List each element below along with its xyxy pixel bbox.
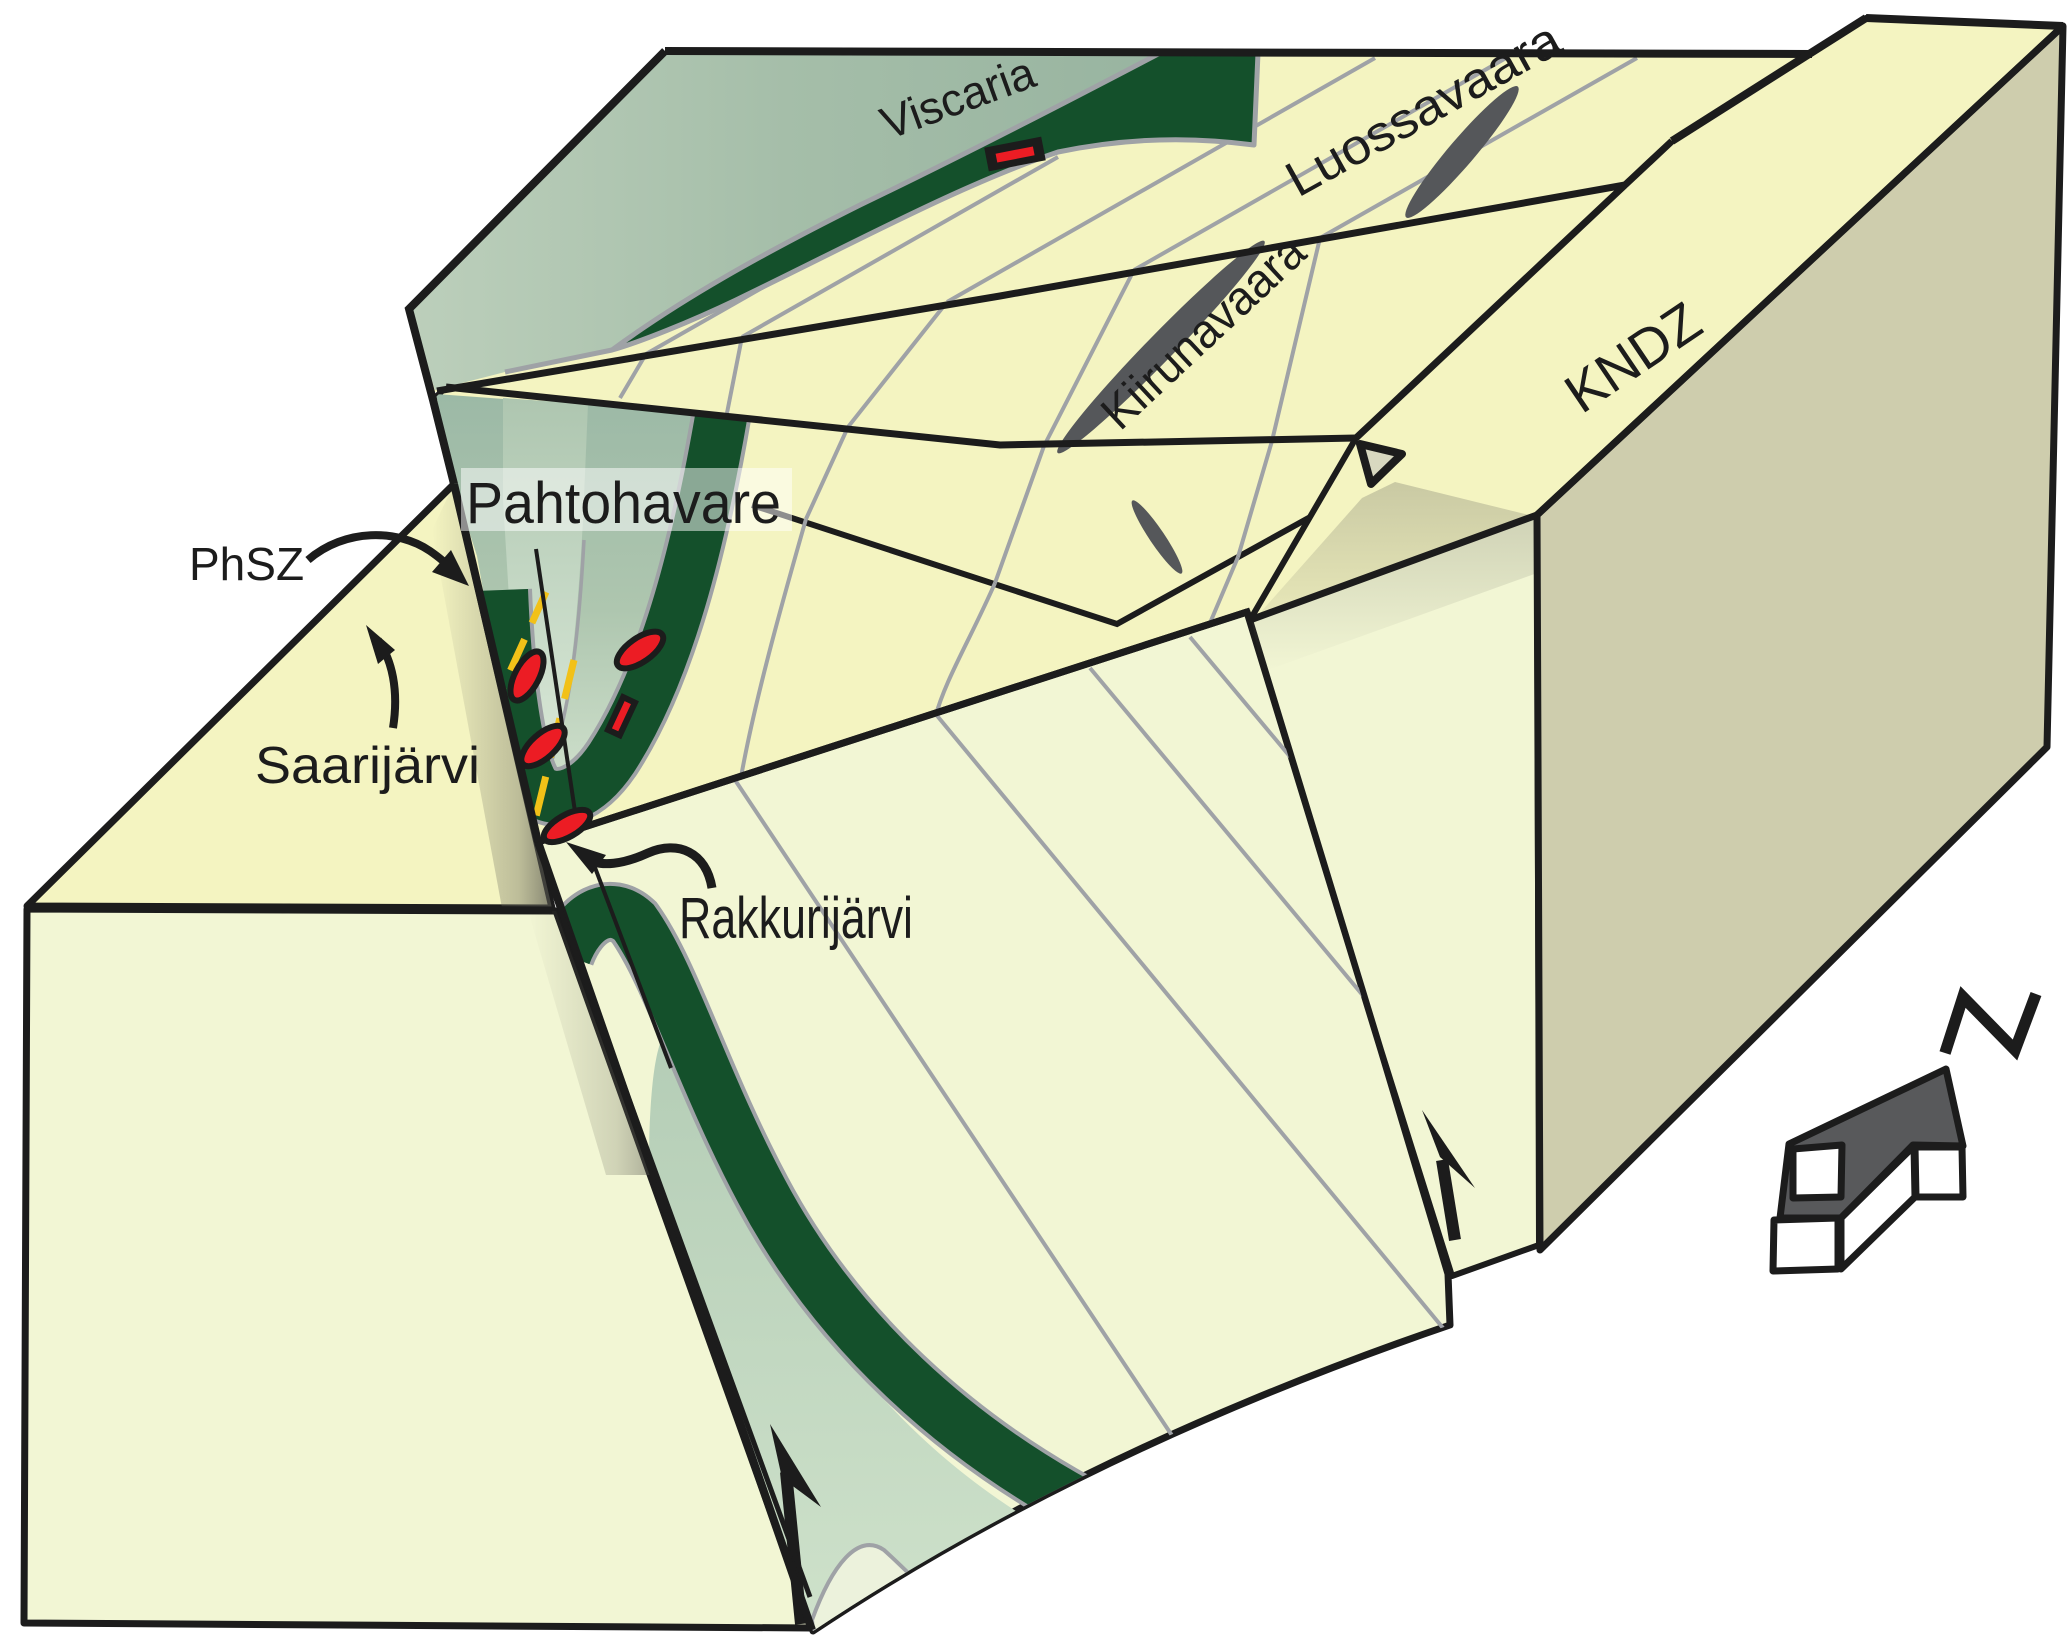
svg-text:Saarijärvi: Saarijärvi	[255, 737, 480, 795]
svg-text:PhSZ: PhSZ	[189, 538, 304, 590]
svg-text:Rakkurijärvi: Rakkurijärvi	[679, 886, 913, 951]
svg-text:Pahtohavare: Pahtohavare	[466, 471, 781, 536]
